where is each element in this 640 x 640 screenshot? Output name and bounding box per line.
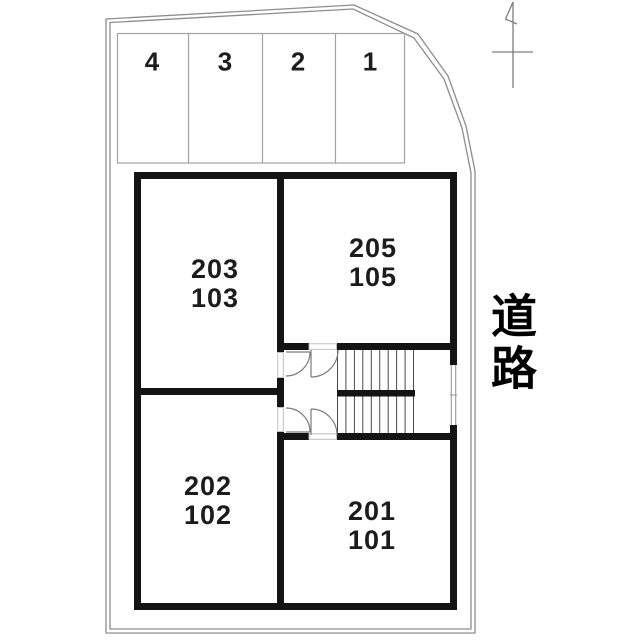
room-number-lower: 103 bbox=[191, 284, 239, 313]
wall-corridor-bottom-right bbox=[337, 433, 450, 440]
north-arrow-icon bbox=[492, 2, 533, 88]
door-threshold bbox=[309, 344, 337, 350]
room-number-lower: 105 bbox=[349, 263, 397, 292]
room-label-203-103: 203 103 bbox=[191, 255, 239, 313]
wall-bottom bbox=[134, 603, 457, 610]
parking-stall-label-2: 2 bbox=[291, 47, 305, 78]
site-plan: 4 3 2 1 203 103 205 105 202 102 201 101 … bbox=[0, 0, 640, 640]
room-label-201-101: 201 101 bbox=[348, 497, 396, 555]
parking-stall-label-3: 3 bbox=[218, 47, 232, 78]
road-label: 道路 bbox=[478, 292, 544, 396]
room-number-lower: 102 bbox=[184, 501, 232, 530]
door-threshold bbox=[278, 353, 284, 378]
wall-203-202 bbox=[134, 388, 284, 395]
plan-linework bbox=[0, 0, 640, 640]
parking-stall-label-4: 4 bbox=[145, 47, 159, 78]
room-label-205-105: 205 105 bbox=[349, 234, 397, 292]
parking-stall-outline bbox=[118, 34, 405, 164]
parking-area bbox=[118, 34, 405, 164]
room-number-lower: 101 bbox=[348, 526, 396, 555]
door-threshold bbox=[278, 408, 284, 432]
wall-center-upper bbox=[277, 172, 284, 352]
door-threshold bbox=[309, 434, 337, 440]
room-number-upper: 202 bbox=[184, 472, 232, 501]
wall-top bbox=[134, 172, 457, 179]
wall-corridor-top-right bbox=[337, 343, 450, 350]
wall-corridor-top-left bbox=[284, 343, 309, 350]
room-number-upper: 203 bbox=[191, 255, 239, 284]
wall-center-lower bbox=[277, 432, 284, 610]
stair-landing-rail bbox=[337, 390, 415, 397]
wall-corridor-bottom-left bbox=[284, 433, 309, 440]
room-label-202-102: 202 102 bbox=[184, 472, 232, 530]
room-number-upper: 201 bbox=[348, 497, 396, 526]
parking-stall-label-1: 1 bbox=[363, 47, 377, 78]
window bbox=[450, 365, 458, 425]
room-number-upper: 205 bbox=[349, 234, 397, 263]
